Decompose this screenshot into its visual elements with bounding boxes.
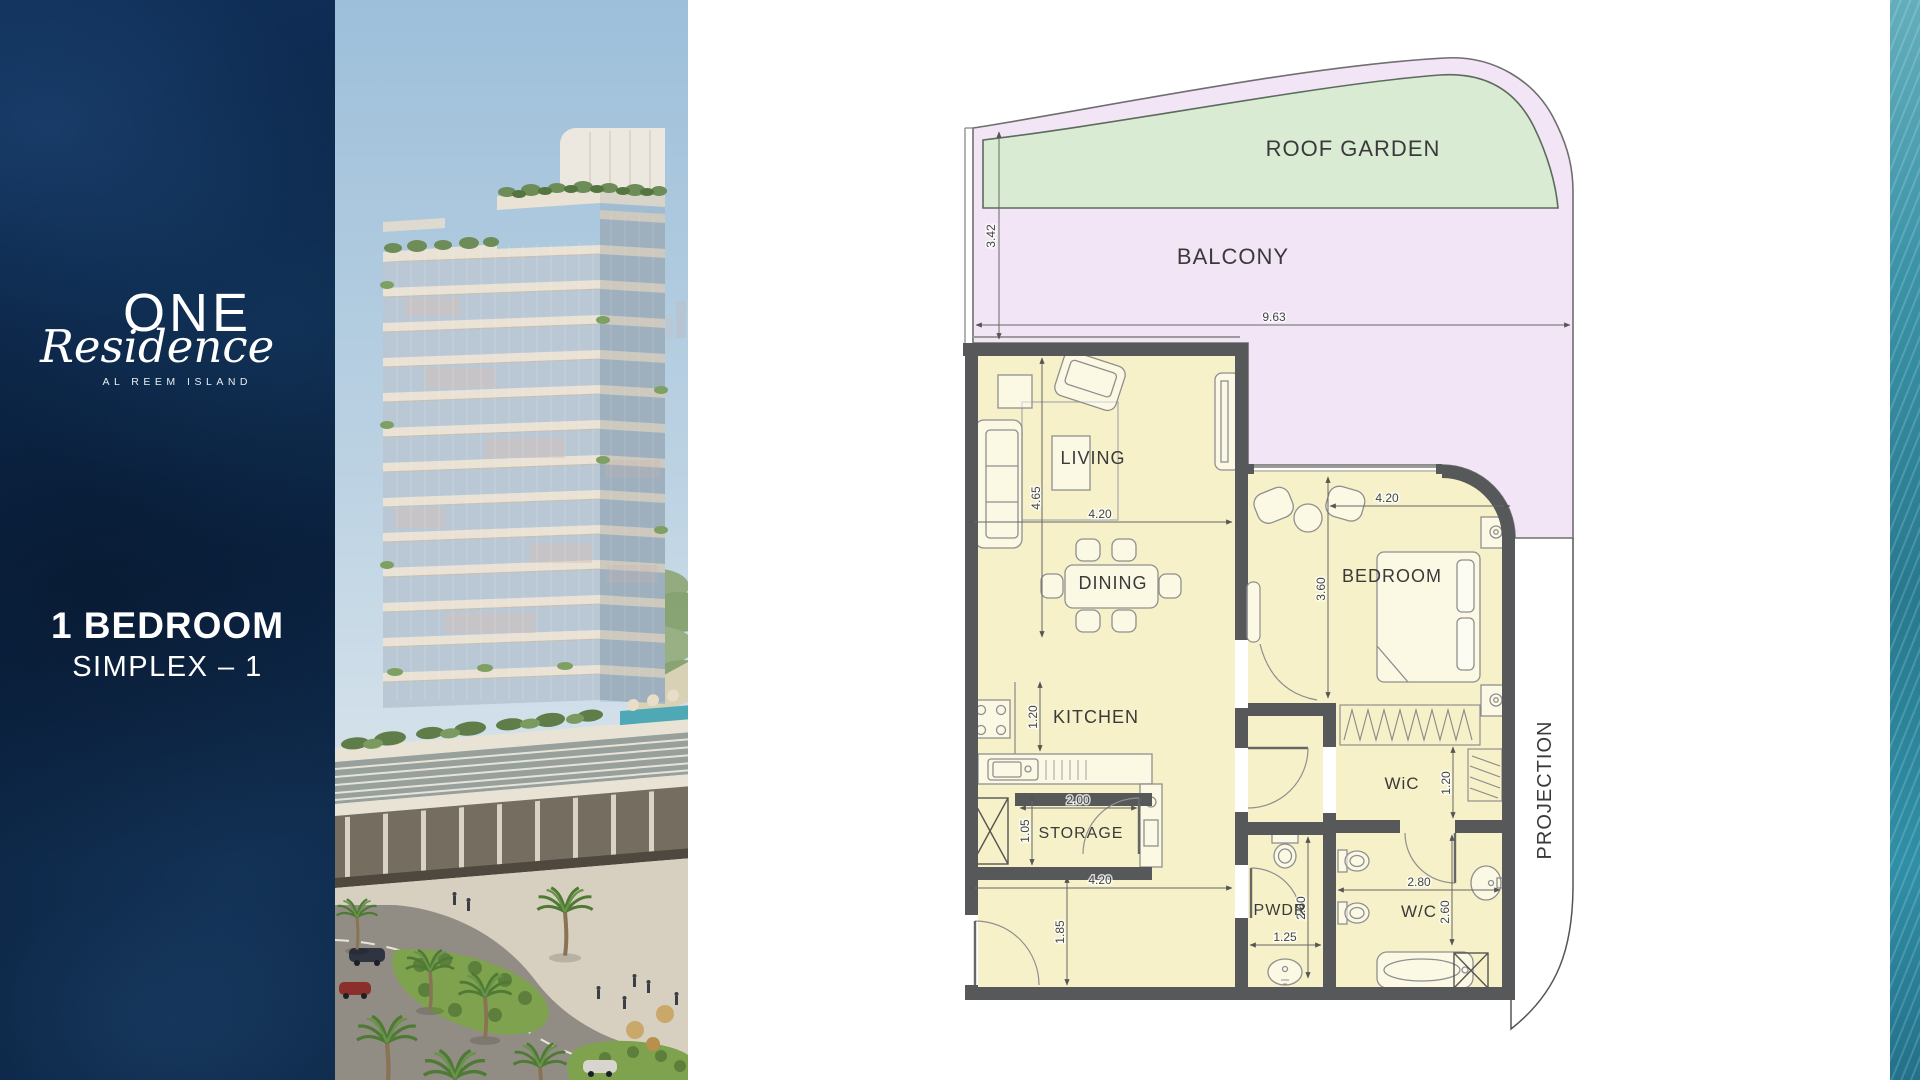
- building-photo: [335, 0, 688, 1080]
- building-illustration: [335, 0, 688, 1080]
- dim-bedroom-depth: 3.60: [1314, 577, 1328, 601]
- shade-face: [600, 190, 665, 702]
- floor-plan: 3.42 9.63 4.65 4.20 1.20 2.00 1.05 4.20 …: [940, 40, 1620, 1040]
- brand-logo: ONE Residence AL REEM ISLAND: [40, 286, 252, 388]
- dim-pwdr-width: 1.25: [1273, 930, 1297, 944]
- water-strip: [1890, 0, 1920, 1080]
- floorplan-area: 3.42 9.63 4.65 4.20 1.20 2.00 1.05 4.20 …: [688, 0, 1890, 1080]
- label-storage: STORAGE: [1039, 825, 1124, 842]
- dim-bedroom-width: 4.20: [1375, 491, 1399, 505]
- label-wic: WiC: [1384, 774, 1419, 793]
- label-dining: DINING: [1079, 573, 1148, 593]
- label-projection: PROJECTION: [1534, 721, 1556, 860]
- dim-hall-width: 4.20: [1088, 873, 1112, 887]
- label-balcony: BALCONY: [1177, 244, 1289, 269]
- dim-wc-depth: 2.60: [1438, 900, 1452, 924]
- logo-location: AL REEM ISLAND: [40, 376, 252, 388]
- brand-panel: ONE Residence AL REEM ISLAND 1 BEDROOM S…: [0, 0, 335, 1080]
- dim-kitchen-depth: 1.20: [1026, 705, 1040, 729]
- unit-title: 1 BEDROOM: [0, 606, 335, 647]
- dim-hall-depth: 1.85: [1053, 920, 1067, 944]
- dim-wc-width: 2.80: [1407, 875, 1431, 889]
- label-living: LIVING: [1060, 448, 1125, 468]
- dim-storage-depth: 1.05: [1018, 819, 1032, 843]
- brochure-slide: ONE Residence AL REEM ISLAND 1 BEDROOM S…: [0, 0, 1920, 1080]
- dim-storage-width: 2.00: [1066, 793, 1090, 807]
- dim-balcony-depth: 3.42: [984, 224, 998, 248]
- logo-wordmark-residence: Residence: [40, 324, 252, 369]
- label-wc: W/C: [1401, 902, 1437, 921]
- dim-living-depth: 4.65: [1029, 486, 1043, 510]
- unit-title-block: 1 BEDROOM SIMPLEX – 1: [0, 606, 335, 684]
- dim-living-width: 4.20: [1088, 507, 1112, 521]
- label-bedroom: BEDROOM: [1342, 566, 1442, 586]
- unit-subtitle: SIMPLEX – 1: [0, 651, 335, 684]
- label-pwdr: PWDR: [1254, 902, 1307, 919]
- label-kitchen: KITCHEN: [1053, 707, 1139, 727]
- dim-wic-depth: 1.20: [1439, 771, 1453, 795]
- label-roof-garden: ROOF GARDEN: [1266, 136, 1441, 161]
- dim-balcony-width: 9.63: [1262, 310, 1286, 324]
